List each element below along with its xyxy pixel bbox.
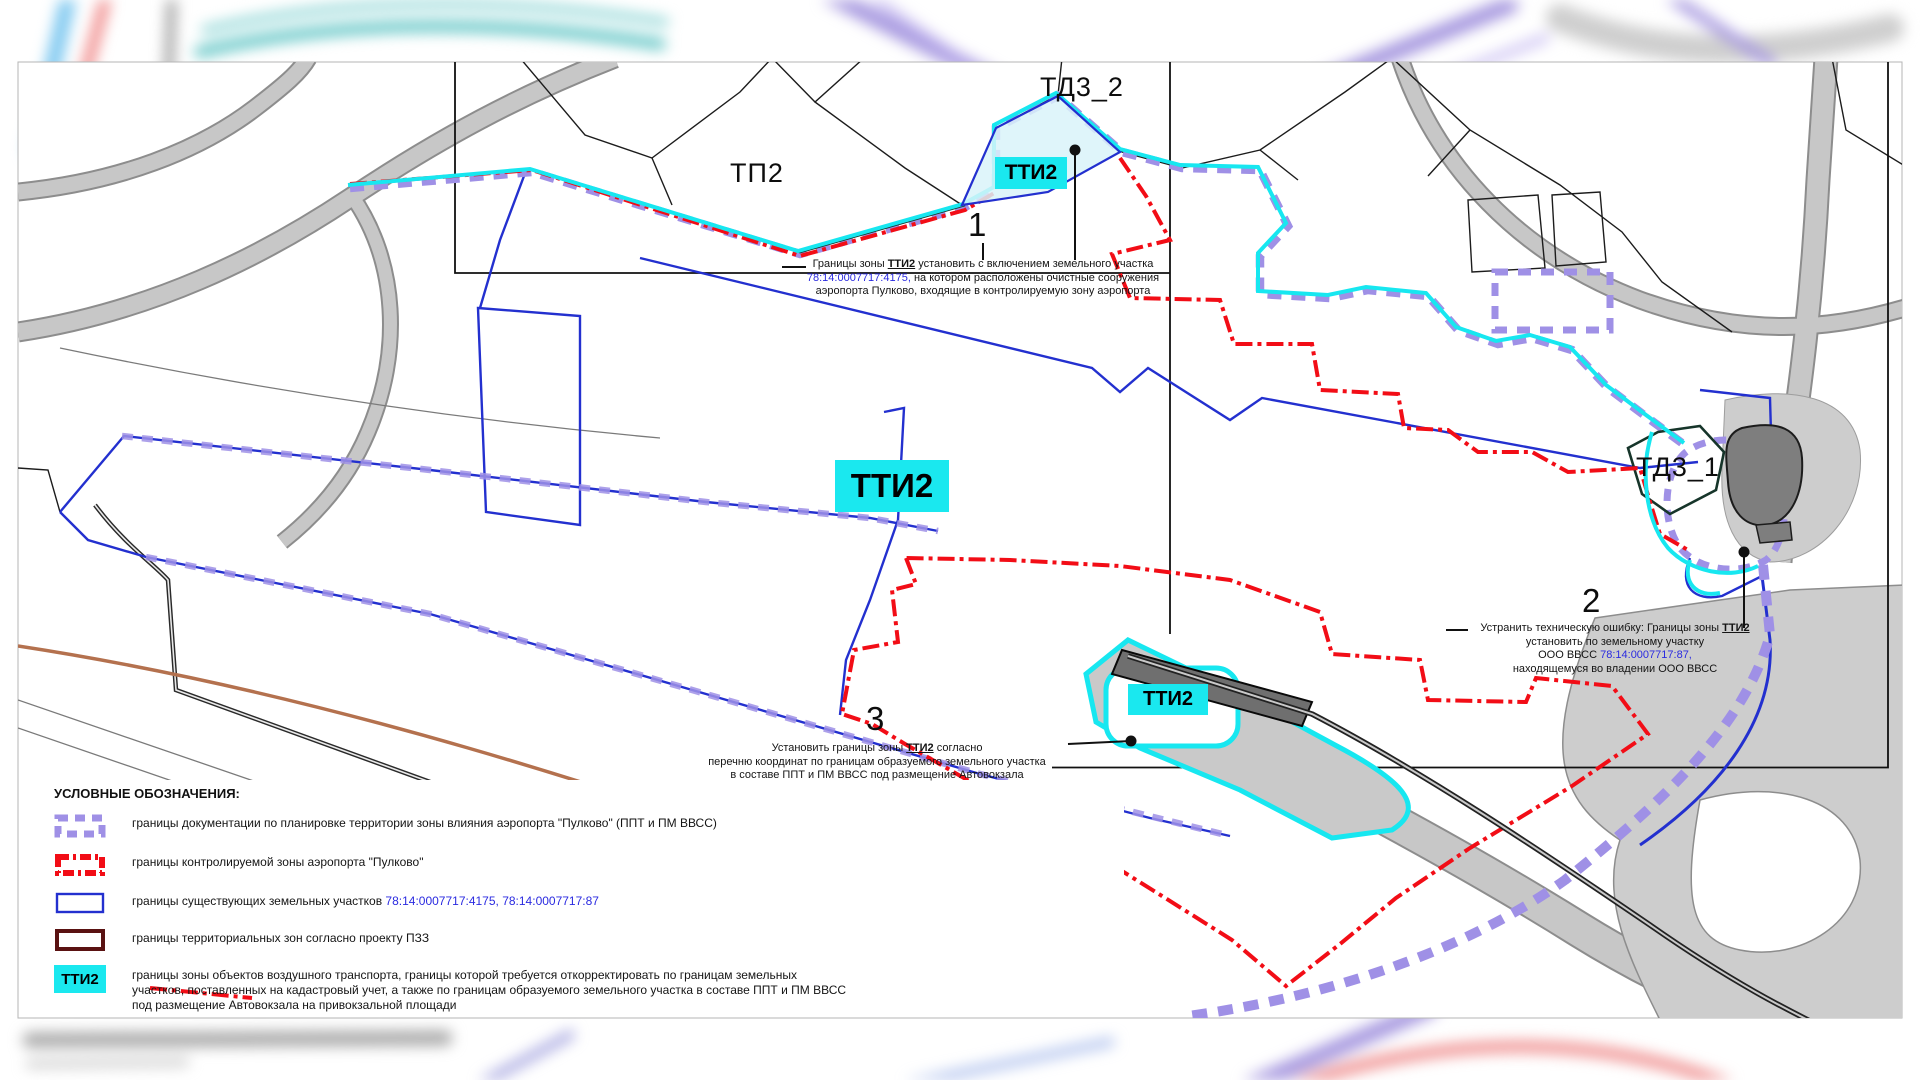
marker-3: 3 <box>866 700 884 738</box>
marker-1: 1 <box>968 206 986 244</box>
legend-label: границы контролируемой зоны аэропорта "П… <box>132 852 423 870</box>
annotation-1-line1: Границы зоны ТТИ2 установить с включение… <box>798 258 1168 272</box>
legend-label: границы существующих земельных участков … <box>132 891 599 909</box>
screenshot-stage: ТД3_2 ТП2 ТД3_1 ТТИ2 ТТИ2 ТТИ2 1 2 3 Гра… <box>0 0 1920 1080</box>
tti2-zone-swatch: ТТИ2 <box>54 965 106 993</box>
planning-boundary-swatch <box>54 813 106 839</box>
tti2-swatch-text: ТТИ2 <box>54 965 106 993</box>
legend-item-territorial-zones: границы территориальных зон согласно про… <box>54 928 1094 952</box>
legend-item-existing-parcels: границы существующих земельных участков … <box>54 891 1094 915</box>
legend-label: границы документации по планировке терри… <box>132 813 717 831</box>
annotation-1-line3: аэропорта Пулково, входящие в контролиру… <box>798 285 1168 299</box>
annotation-1-line2: 78:14:0007717:4175, на котором расположе… <box>798 272 1168 286</box>
annotation-2-line3: ООО ВВСС 78:14:0007717:87, <box>1455 649 1775 663</box>
legend-label: границы территориальных зон согласно про… <box>132 928 429 946</box>
tti2-label-top: ТТИ2 <box>995 157 1067 189</box>
marker-2: 2 <box>1582 582 1600 620</box>
annotation-2-line4: находящемуся во владении ООО ВВСС <box>1455 663 1775 677</box>
annotation-2: Устранить техническую ошибку: Границы зо… <box>1455 622 1775 676</box>
controlled-zone-swatch <box>54 852 106 878</box>
annotation-1: Границы зоны ТТИ2 установить с включение… <box>798 258 1168 299</box>
tti2-label-center: ТТИ2 <box>835 460 949 512</box>
annotation-2-line2: установить по земельному участку <box>1455 636 1775 650</box>
zone-label-td3-2: ТД3_2 <box>1040 72 1124 103</box>
tti2-label-bus-terminal: ТТИ2 <box>1128 684 1208 715</box>
existing-parcels-swatch <box>54 891 106 915</box>
legend-title: УСЛОВНЫЕ ОБОЗНАЧЕНИЯ: <box>54 786 1094 801</box>
legend-item-planning-boundary: границы документации по планировке терри… <box>54 813 1094 839</box>
legend: УСЛОВНЫЕ ОБОЗНАЧЕНИЯ: границы документац… <box>54 786 1094 1026</box>
legend-item-tti2-zone: ТТИ2 границы зоны объектов воздушного тр… <box>54 965 1094 1013</box>
annotation-3: Установить границы зоны ТТИ2 согласно пе… <box>688 742 1066 783</box>
annotation-3-line2: перечню координат по границам образуемог… <box>688 756 1066 770</box>
legend-item-controlled-zone: границы контролируемой зоны аэропорта "П… <box>54 852 1094 878</box>
zone-label-tp2: ТП2 <box>730 158 784 189</box>
annotation-3-line3: в составе ППТ и ПМ ВВСС под размещение А… <box>688 769 1066 783</box>
legend-label: границы зоны объектов воздушного транспо… <box>132 965 846 1013</box>
annotation-3-line1: Установить границы зоны ТТИ2 согласно <box>688 742 1066 756</box>
annotation-2-line1: Устранить техническую ошибку: Границы зо… <box>1455 622 1775 636</box>
zone-label-td3-1: ТД3_1 <box>1636 452 1720 483</box>
territorial-zones-swatch <box>54 928 106 952</box>
